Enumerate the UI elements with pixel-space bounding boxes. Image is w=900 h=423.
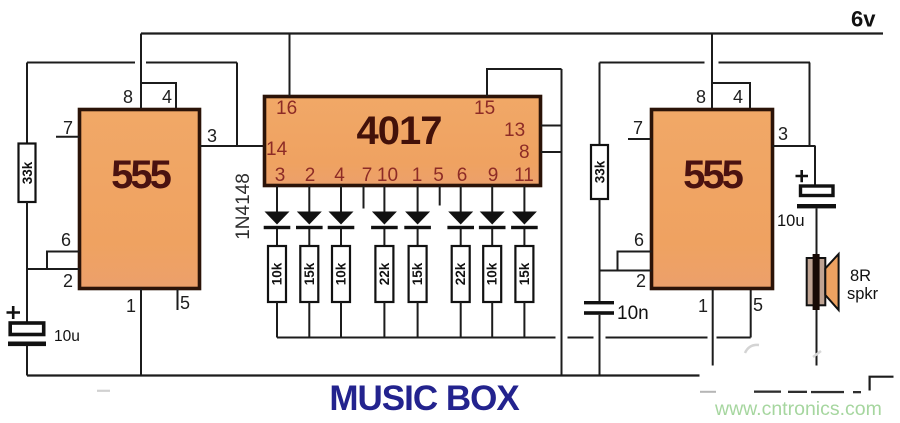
svg-text:15k: 15k	[517, 262, 532, 285]
svg-text:8: 8	[519, 142, 530, 163]
svg-text:3: 3	[778, 124, 788, 144]
svg-text:4017: 4017	[357, 109, 442, 153]
svg-text:3: 3	[207, 126, 217, 146]
svg-text:1: 1	[126, 296, 136, 316]
svg-text:15k: 15k	[410, 262, 425, 285]
svg-text:7: 7	[633, 118, 643, 138]
svg-text:6v: 6v	[851, 7, 876, 32]
svg-text:10k: 10k	[334, 262, 349, 285]
svg-text:MUSIC BOX: MUSIC BOX	[329, 379, 520, 418]
svg-text:1: 1	[412, 165, 423, 186]
svg-text:14: 14	[266, 139, 288, 160]
svg-text:8: 8	[123, 87, 133, 107]
svg-text:1N4148: 1N4148	[233, 173, 254, 240]
svg-text:6: 6	[457, 165, 468, 186]
svg-text:www.cntronics.com: www.cntronics.com	[714, 398, 882, 420]
svg-text:2: 2	[63, 271, 73, 291]
svg-text:7: 7	[63, 118, 73, 138]
svg-text:4: 4	[162, 87, 172, 107]
svg-text:5: 5	[180, 293, 190, 313]
svg-text:10: 10	[377, 165, 398, 186]
svg-text:33k: 33k	[20, 161, 35, 184]
svg-text:4: 4	[334, 165, 345, 186]
svg-text:15k: 15k	[302, 262, 317, 285]
svg-text:2: 2	[305, 165, 316, 186]
svg-text:8R: 8R	[850, 267, 871, 285]
svg-text:16: 16	[276, 98, 297, 119]
svg-text:2: 2	[636, 271, 646, 291]
svg-text:33k: 33k	[593, 160, 608, 183]
svg-text:13: 13	[504, 120, 525, 141]
svg-text:10n: 10n	[617, 303, 649, 324]
svg-text:10k: 10k	[270, 262, 285, 285]
svg-text:1: 1	[698, 296, 708, 316]
svg-text:7: 7	[362, 165, 373, 186]
svg-text:8: 8	[696, 87, 706, 107]
svg-text:22k: 22k	[377, 262, 392, 285]
svg-text:5: 5	[753, 295, 763, 315]
svg-text:10u: 10u	[777, 212, 805, 230]
svg-text:3: 3	[275, 165, 286, 186]
svg-text:6: 6	[61, 230, 71, 250]
svg-text:22k: 22k	[453, 262, 468, 285]
svg-text:5: 5	[433, 165, 444, 186]
svg-text:spkr: spkr	[847, 285, 879, 303]
svg-text:10u: 10u	[54, 328, 80, 345]
svg-text:6: 6	[634, 230, 644, 250]
svg-text:4: 4	[733, 87, 743, 107]
svg-text:555: 555	[111, 153, 171, 197]
svg-text:555: 555	[683, 153, 743, 197]
svg-text:11: 11	[514, 165, 534, 186]
svg-text:15: 15	[474, 98, 495, 119]
svg-text:10k: 10k	[485, 262, 500, 285]
svg-text:9: 9	[488, 165, 499, 186]
